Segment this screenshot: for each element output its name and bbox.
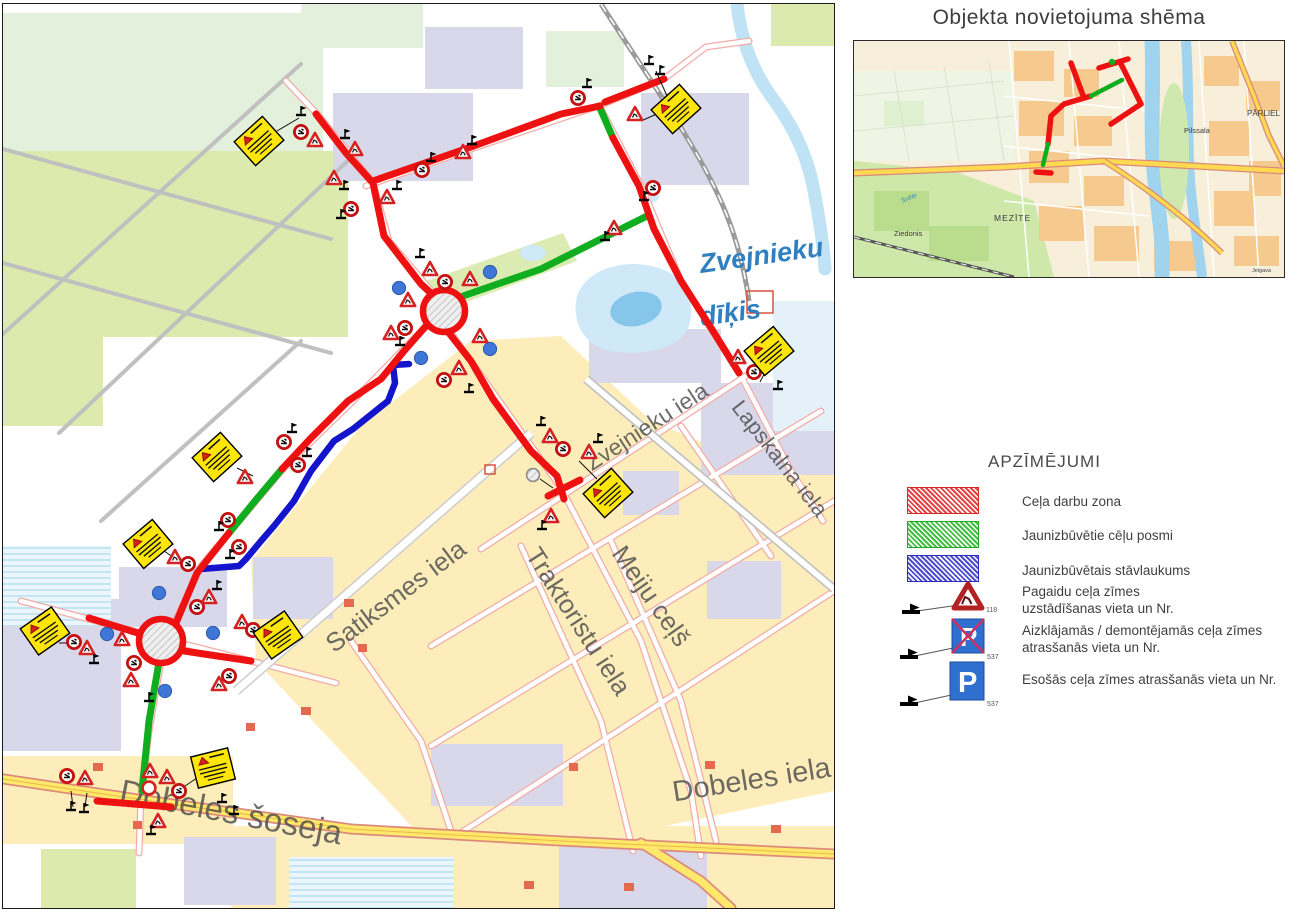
- no-entry-sign-icon: [437, 373, 450, 386]
- no-entry-sign-icon: [181, 557, 194, 570]
- no-entry-sign-icon: [438, 275, 451, 288]
- legend-sign-number-118: 118: [986, 607, 997, 614]
- no-entry-sign-icon: [67, 635, 80, 648]
- no-entry-sign-icon: [398, 321, 411, 334]
- no-entry-sign-icon: [556, 442, 569, 455]
- legend-label-covered-line1: Aizklājamās / demontējamās ceļa zīmes: [1022, 622, 1292, 639]
- main-map-canvas: Zvejnieku dīķis Zvejnieku iela Lapskalna…: [3, 4, 834, 908]
- no-entry-sign-icon: [221, 513, 234, 526]
- covered-sign-dot-icon: [100, 627, 113, 640]
- legend-sign-number-537b: 537: [987, 701, 999, 708]
- no-entry-sign-icon: [291, 458, 304, 471]
- legend-label-temporary-line1: Pagaidu ceļa zīmes: [1022, 583, 1292, 600]
- no-entry-sign-icon: [277, 435, 290, 448]
- covered-sign-dot-icon: [158, 684, 171, 697]
- roadworks-triangle-icon: [954, 584, 982, 608]
- no-entry-sign-icon: [344, 202, 357, 215]
- inset-label-ziedonis: Ziedonis: [894, 229, 923, 238]
- legend-label-temporary: Pagaidu ceļa zīmes uzstādīšanas vieta un…: [1022, 583, 1292, 617]
- inset-label-parliel: PĀRLIEL: [1247, 109, 1280, 118]
- no-entry-sign-icon: [294, 125, 307, 138]
- parking-sign-crossed-icon: P: [952, 619, 984, 653]
- legend-label-new-parking: Jaunizbūvētais stāvlaukums: [1022, 562, 1292, 579]
- no-entry-sign-icon: [172, 784, 185, 797]
- no-entry-sign-icon: [232, 540, 245, 553]
- main-map: Zvejnieku dīķis Zvejnieku iela Lapskalna…: [2, 3, 835, 909]
- roundabout-south: [139, 619, 183, 663]
- no-entry-sign-icon: [571, 91, 584, 104]
- legend-label-existing-line1: Esošās ceļa zīmes atrasšanās vieta un Nr…: [1022, 671, 1292, 688]
- traffic-scheme-page: Zvejnieku dīķis Zvejnieku iela Lapskalna…: [0, 0, 1298, 913]
- inset-title: Objekta novietojuma shēma: [840, 6, 1298, 30]
- covered-sign-dot-icon: [414, 351, 427, 364]
- legend-label-new-roads: Jaunizbūvētie cēļu posmi: [1022, 527, 1292, 544]
- legend-label-covered: Aizklājamās / demontējamās ceļa zīmes at…: [1022, 622, 1292, 656]
- legend-label-temporary-line2: uzstādīšanas vieta un Nr.: [1022, 600, 1292, 617]
- existing-sign-circle-icon: [527, 469, 540, 482]
- legend-title: APZĪMĒJUMI: [988, 452, 1101, 472]
- svg-text:P: P: [958, 667, 977, 699]
- covered-sign-dot-icon: [392, 281, 405, 294]
- legend-swatch-works-zone: [907, 487, 979, 514]
- roundabout-north: [423, 290, 465, 332]
- no-entry-sign-icon: [60, 769, 73, 782]
- inset-label-pilssala: Pilssala: [1184, 126, 1211, 135]
- legend-label-existing: Esošās ceļa zīmes atrasšanās vieta un Nr…: [1022, 671, 1292, 688]
- inset-map-canvas: PĀRLIEL Pilssala MEZĪTE Ziedonis Svēte J…: [854, 41, 1284, 277]
- covered-sign-dot-icon: [483, 265, 496, 278]
- legend-label-works-zone: Ceļa darbu zona: [1022, 493, 1292, 510]
- covered-sign-dot-icon: [152, 586, 165, 599]
- inset-label-mezite: MEZĪTE: [994, 213, 1031, 223]
- no-entry-sign-icon: [222, 669, 235, 682]
- legend-label-covered-line2: atrasšanās vieta un Nr.: [1022, 639, 1292, 656]
- covered-sign-dot-icon: [206, 626, 219, 639]
- covered-sign-dot-icon: [483, 342, 496, 355]
- inset-map: PĀRLIEL Pilssala MEZĪTE Ziedonis Svēte J…: [853, 40, 1285, 278]
- prohibition-ring-icon: [143, 782, 156, 795]
- parking-sign-icon: P: [950, 662, 984, 700]
- legend-sign-existing: P 537: [896, 660, 1016, 717]
- no-entry-sign-icon: [415, 163, 428, 176]
- inset-label-jelgava: Jelgava: [1252, 268, 1272, 274]
- no-entry-sign-icon: [127, 656, 140, 669]
- legend-swatch-new-roads: [907, 521, 979, 548]
